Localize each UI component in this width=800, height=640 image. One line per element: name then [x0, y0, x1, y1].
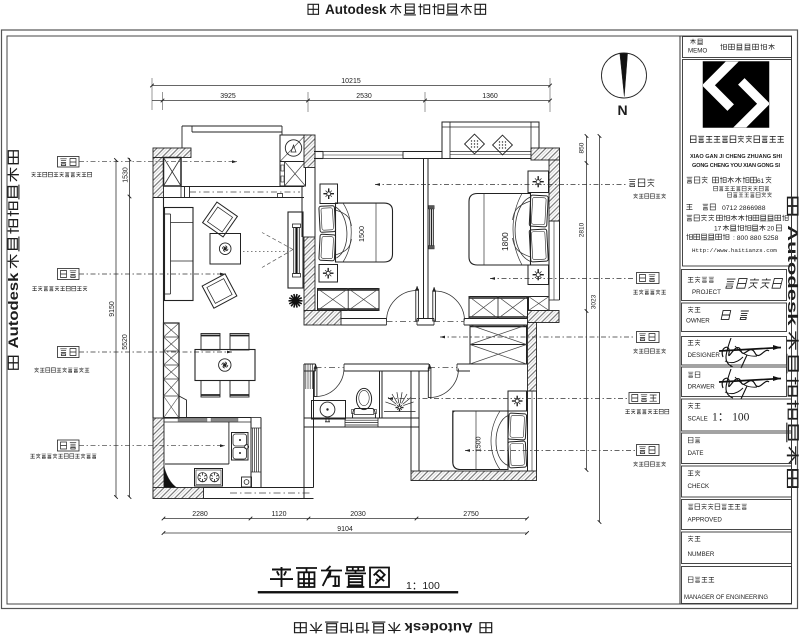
svg-text:N: N — [618, 102, 628, 118]
svg-text:CHECK: CHECK — [688, 483, 711, 490]
svg-text:2810: 2810 — [579, 222, 586, 237]
svg-text:17: 17 — [714, 226, 722, 233]
svg-text:9104: 9104 — [337, 526, 353, 533]
svg-text:SCALE: SCALE — [688, 416, 708, 423]
svg-text:3023: 3023 — [591, 294, 598, 309]
svg-text:XIAO GAN JI CHENG ZHUANG SHI: XIAO GAN JI CHENG ZHUANG SHI — [690, 154, 782, 160]
svg-text:1500: 1500 — [476, 436, 483, 452]
svg-text:DATE: DATE — [688, 450, 704, 457]
svg-text:850: 850 — [579, 142, 586, 153]
svg-text:3925: 3925 — [220, 93, 236, 100]
svg-text:DESIGNER: DESIGNER — [688, 352, 721, 359]
svg-text:0712 2866988: 0712 2866988 — [722, 205, 766, 212]
svg-text:1500: 1500 — [357, 226, 366, 242]
svg-text:Autodesk: Autodesk — [405, 619, 473, 634]
svg-text:5520: 5520 — [122, 334, 129, 350]
svg-text:GONG CHENG YOU XIAN GONG SI: GONG CHENG YOU XIAN GONG SI — [692, 163, 780, 169]
svg-text:NUMBER: NUMBER — [688, 551, 715, 558]
svg-text:1：100: 1：100 — [406, 580, 440, 592]
svg-text:9150: 9150 — [109, 301, 116, 317]
svg-text:2530: 2530 — [356, 93, 372, 100]
svg-text:MEMO: MEMO — [688, 48, 707, 55]
svg-text:OWNER: OWNER — [686, 318, 710, 325]
svg-text:: 800 880 5258: : 800 880 5258 — [733, 235, 779, 242]
svg-text:1360: 1360 — [482, 93, 498, 100]
svg-text:1800: 1800 — [500, 232, 510, 251]
svg-text:2030: 2030 — [350, 511, 366, 518]
svg-text:Autodesk: Autodesk — [325, 2, 387, 17]
svg-text:1530: 1530 — [123, 167, 130, 183]
svg-text:Autodesk: Autodesk — [6, 272, 21, 348]
svg-text:20: 20 — [767, 226, 775, 233]
svg-text:2750: 2750 — [463, 511, 479, 518]
svg-text:DRAWER: DRAWER — [688, 384, 716, 391]
svg-text:Autodesk: Autodesk — [785, 225, 800, 326]
svg-text:1120: 1120 — [271, 511, 286, 518]
svg-text:MANAGER OF ENGINEERING: MANAGER OF ENGINEERING — [684, 595, 768, 601]
svg-text:APPROVED: APPROVED — [688, 517, 723, 524]
svg-text:Http://www.haitianzs.com: Http://www.haitianzs.com — [692, 247, 777, 254]
svg-text:2280: 2280 — [192, 511, 208, 518]
svg-text:61: 61 — [757, 178, 765, 185]
svg-text:10215: 10215 — [341, 78, 361, 85]
svg-text:1： 100: 1： 100 — [712, 412, 750, 424]
svg-text:PROJECT: PROJECT — [692, 289, 721, 296]
